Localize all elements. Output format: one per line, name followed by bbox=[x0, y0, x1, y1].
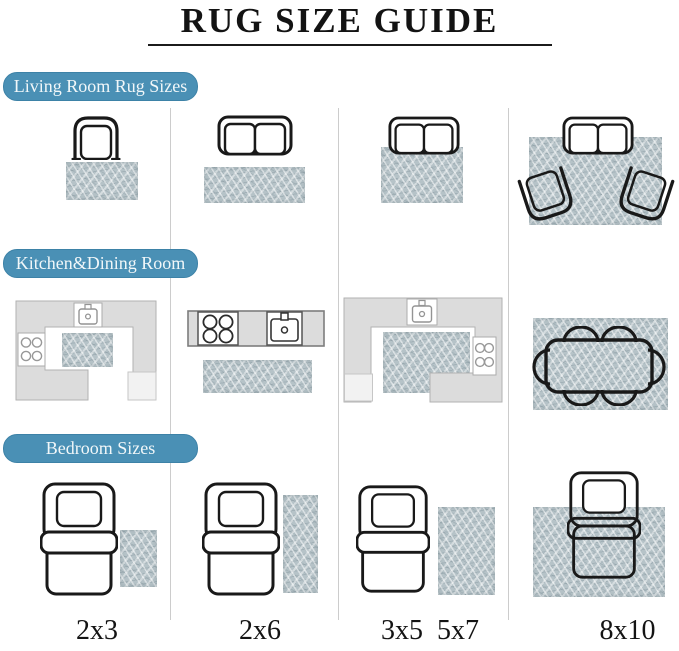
stove-icon bbox=[473, 337, 496, 375]
rug-2x6 bbox=[283, 495, 318, 593]
banner-living-room: Living Room Rug Sizes bbox=[3, 72, 198, 101]
island-icon bbox=[128, 372, 156, 400]
column-divider bbox=[508, 108, 509, 620]
island-icon bbox=[345, 374, 373, 401]
bed-icon bbox=[567, 469, 641, 581]
bed-icon bbox=[202, 482, 280, 596]
sink-icon bbox=[74, 303, 102, 327]
rug-2x6 bbox=[203, 360, 312, 393]
armchair-icon bbox=[71, 115, 121, 160]
banner-bedroom: Bedroom Sizes bbox=[3, 434, 198, 463]
banner-kitchen-dining: Kitchen&Dining Room bbox=[3, 249, 198, 278]
rug-2x3 bbox=[66, 162, 138, 200]
dining-table-icon bbox=[518, 326, 678, 406]
size-label-2x3: 2x3 bbox=[0, 615, 194, 647]
loveseat-icon bbox=[217, 115, 293, 157]
kitchen-counter-u-icon bbox=[343, 297, 503, 403]
kitchen-counter-straight-icon bbox=[187, 310, 325, 347]
loveseat-icon bbox=[388, 115, 460, 157]
bed-icon bbox=[356, 482, 430, 596]
size-label-8x10: 8x10 bbox=[540, 615, 679, 647]
kitchen-counter-u-icon bbox=[15, 300, 157, 401]
pillow-icon bbox=[219, 492, 263, 526]
size-label-3x5-5x7: 3x5 5x7 bbox=[340, 615, 520, 647]
rug-2x6 bbox=[204, 167, 305, 203]
sink-icon bbox=[267, 312, 302, 345]
page-title: RUG SIZE GUIDE bbox=[0, 1, 679, 41]
stove-icon bbox=[198, 312, 238, 345]
rug-2x3 bbox=[120, 530, 157, 587]
loveseat-icon bbox=[562, 115, 634, 157]
column-divider bbox=[338, 108, 339, 620]
rug-size-guide-infographic: RUG SIZE GUIDE Living Room Rug Sizes Kit… bbox=[0, 0, 679, 651]
stove-icon bbox=[18, 333, 45, 366]
bed-icon bbox=[40, 482, 118, 596]
pillow-icon bbox=[372, 494, 414, 526]
column-divider bbox=[170, 108, 171, 620]
pillow-icon bbox=[583, 480, 625, 512]
title-underline bbox=[148, 44, 552, 46]
sink-icon bbox=[407, 299, 437, 325]
size-label-2x6: 2x6 bbox=[170, 615, 350, 647]
rug-3x5-5x7 bbox=[438, 507, 495, 595]
pillow-icon bbox=[57, 492, 101, 526]
